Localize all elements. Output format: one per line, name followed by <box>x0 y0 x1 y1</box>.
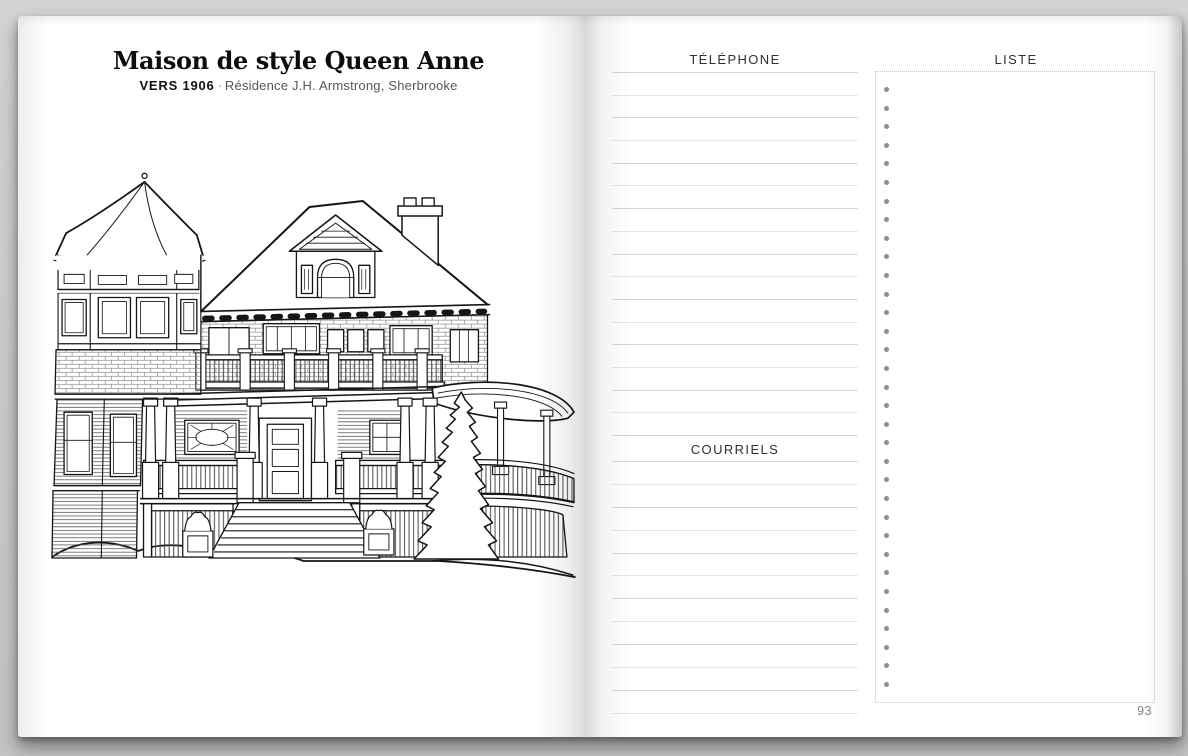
bullet-dot <box>884 199 889 204</box>
ruled-line <box>612 254 858 277</box>
ruled-line <box>612 276 858 299</box>
bullet-dot <box>884 515 889 520</box>
book-spread-photo: Maison de style Queen Anne VERS 1906·Rés… <box>0 0 1188 756</box>
ruled-line <box>612 644 858 667</box>
bullet-dot <box>884 161 889 166</box>
bullet-dot <box>884 87 889 92</box>
bullet-dot <box>884 626 889 631</box>
ruled-line <box>612 690 858 713</box>
bullet-dot <box>884 180 889 185</box>
bullet-dot <box>884 143 889 148</box>
bullet-dot <box>884 106 889 111</box>
liste-dotted-box <box>875 71 1155 703</box>
bullet-dot <box>884 533 889 538</box>
ruled-line <box>612 322 858 345</box>
house-illustration <box>50 170 578 594</box>
liste-section-header: LISTE <box>876 52 1156 67</box>
ruled-line <box>612 299 858 322</box>
bullet-dot <box>884 385 889 390</box>
bullet-dot <box>884 366 889 371</box>
bullet-dot <box>884 403 889 408</box>
ruled-line <box>612 553 858 576</box>
ruled-line <box>612 598 858 621</box>
bullet-dot <box>884 552 889 557</box>
bullet-dot <box>884 477 889 482</box>
bullet-dot <box>884 422 889 427</box>
bullet-dot <box>884 273 889 278</box>
era-label: VERS 1906 <box>139 78 214 93</box>
ruled-line <box>612 72 858 95</box>
subtitle-separator: · <box>215 78 225 93</box>
courriels-ruled-lines <box>612 461 858 736</box>
ruled-line <box>612 140 858 163</box>
bullet-dot <box>884 570 889 575</box>
ruled-line <box>612 208 858 231</box>
bullet-dot <box>884 124 889 129</box>
residence-caption: Résidence J.H. Armstrong, Sherbrooke <box>225 78 458 93</box>
bullet-dot <box>884 310 889 315</box>
ruled-line <box>612 412 858 435</box>
ruled-line <box>612 95 858 118</box>
bullet-dot <box>884 663 889 668</box>
ruled-line <box>612 484 858 507</box>
bullet-dot <box>884 682 889 687</box>
bullet-dot <box>884 496 889 501</box>
left-page-header: Maison de style Queen Anne VERS 1906·Rés… <box>19 48 578 93</box>
liste-bullets <box>884 87 889 701</box>
ruled-line <box>612 667 858 690</box>
ruled-line <box>612 461 858 484</box>
ruled-line <box>612 530 858 553</box>
bullet-dot <box>884 254 889 259</box>
bullet-dot <box>884 645 889 650</box>
bullet-dot <box>884 608 889 613</box>
ruled-line <box>612 163 858 186</box>
ruled-line <box>612 367 858 390</box>
ruled-line <box>612 713 858 736</box>
ruled-line <box>612 621 858 644</box>
bullet-dot <box>884 440 889 445</box>
telephone-section-header: TÉLÉPHONE <box>612 52 858 67</box>
telephone-ruled-lines <box>612 72 858 458</box>
bullet-dot <box>884 292 889 297</box>
page-number: 93 <box>1108 704 1152 718</box>
ruled-line <box>612 575 858 598</box>
bullet-dot <box>884 347 889 352</box>
bullet-dot <box>884 459 889 464</box>
ruled-line <box>612 344 858 367</box>
ruled-line <box>612 507 858 530</box>
ruled-line <box>612 117 858 140</box>
courriels-section-header: COURRIELS <box>612 442 858 457</box>
page-title: Maison de style Queen Anne <box>19 48 578 74</box>
bullet-dot <box>884 329 889 334</box>
page-subtitle: VERS 1906·Résidence J.H. Armstrong, Sher… <box>19 78 578 93</box>
bullet-dot <box>884 589 889 594</box>
ruled-line <box>612 185 858 208</box>
bullet-dot <box>884 236 889 241</box>
ruled-line <box>612 231 858 254</box>
ruled-line <box>612 390 858 413</box>
bullet-dot <box>884 217 889 222</box>
